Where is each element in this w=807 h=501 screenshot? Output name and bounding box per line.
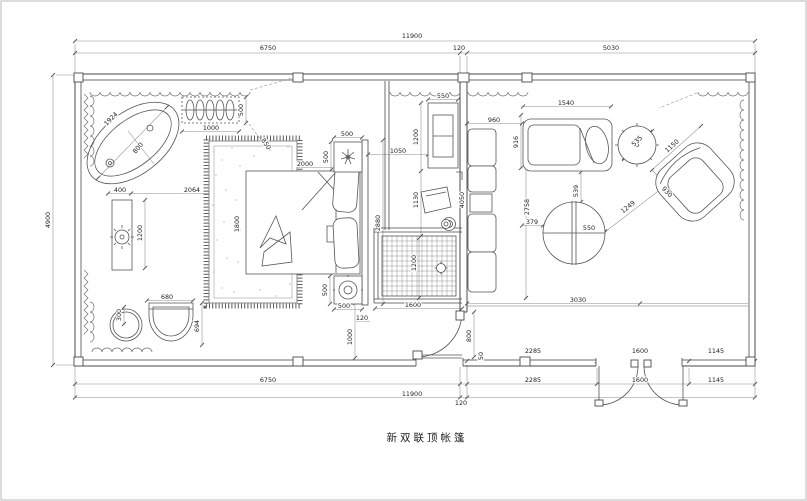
dim-vanity-width: 400 — [114, 186, 126, 194]
door-single — [413, 311, 464, 359]
nightstand-top — [334, 142, 362, 172]
dim-living-height: 2758 — [523, 199, 531, 215]
round-table — [543, 201, 605, 265]
dimension-lines — [51, 39, 757, 400]
dim-chair-length: 1130 — [412, 192, 420, 208]
curtain-top-left — [90, 92, 250, 96]
corridor — [382, 103, 462, 296]
curtain-right-wall — [740, 100, 744, 220]
dim-table-v: 539 — [572, 185, 580, 197]
dim-tv-gap: 1050 — [390, 147, 406, 155]
dim-diag-table: 1249 — [619, 199, 637, 215]
curtain-bottom-left — [92, 348, 152, 352]
dim-bottom-wall: 120 — [455, 399, 467, 407]
dim-sofa-wall: 4050 — [458, 192, 466, 208]
dim-bottom-total: 11900 — [402, 390, 422, 398]
curtain-top-right — [698, 92, 748, 96]
tv-cabinet — [428, 103, 462, 180]
curtain-left-wall-bottom — [90, 302, 94, 342]
dim-sofa-top: 960 — [488, 116, 500, 124]
dim-living-width: 3030 — [570, 296, 586, 304]
floor-plan-sheet: 11900 6750 120 5030 4900 2285 1600 1145 … — [0, 0, 807, 501]
dim-toilet-width: 680 — [161, 293, 173, 301]
dim-bed-wall: 2880 — [374, 215, 382, 231]
armchair — [648, 135, 741, 228]
dim-door-width: 800 — [465, 330, 473, 342]
dim-chaise-width: 1540 — [558, 99, 574, 107]
drawing-title: 新双联顶帐篷 — [387, 431, 468, 444]
dim-row1-a: 2285 — [525, 347, 541, 355]
nightstand-bottom — [333, 275, 363, 305]
bedroom — [206, 138, 363, 306]
dim-table-gap: 379 — [526, 218, 538, 226]
curtain-zigzag-left — [84, 94, 88, 334]
dim-sofa-depth: 916 — [512, 136, 520, 148]
dimension-labels: 11900 6750 120 5030 4900 2285 1600 1145 … — [44, 32, 724, 407]
dim-wall-50: 50 — [477, 352, 485, 360]
dim-vanity-gap: 2064 — [184, 186, 200, 194]
sofa — [467, 128, 496, 292]
dim-tub-length: 1924 — [102, 110, 119, 127]
bathtub — [72, 86, 194, 200]
bathtub-drain — [147, 125, 153, 131]
toilet — [149, 303, 193, 341]
door-gap-1 — [416, 357, 463, 367]
dim-tub-radius: 800 — [131, 141, 145, 155]
dim-nightstand-bot-w: 500 — [338, 302, 350, 310]
floor-plan-canvas: 11900 6750 120 5030 4900 2285 1600 1145 … — [0, 0, 807, 501]
vanity — [110, 200, 134, 270]
dim-rack-width: 1000 — [203, 124, 219, 132]
dim-row1-b: 1600 — [632, 347, 648, 355]
dim-row2-left: 6750 — [260, 376, 276, 384]
shower-drain — [437, 264, 446, 273]
dim-row1-c: 1145 — [708, 347, 724, 355]
dim-top-right: 5030 — [603, 44, 619, 52]
dim-gap-1000: 1000 — [346, 329, 354, 345]
dim-row2-b: 1600 — [632, 376, 648, 384]
dim-row2-a: 2285 — [525, 376, 541, 384]
dim-tv-length: 1200 — [412, 129, 420, 145]
dim-rack-depth: 500 — [237, 104, 245, 116]
bed — [246, 159, 360, 274]
dim-stool: 300 — [115, 309, 123, 321]
dim-top-total: 11900 — [402, 32, 422, 40]
dim-tv-width: 550 — [437, 92, 449, 100]
pillow — [333, 217, 360, 268]
sofa-side-table — [470, 194, 492, 212]
dim-nightstand-bot-h: 500 — [321, 284, 329, 296]
dim-carpet-height: 1800 — [233, 216, 241, 232]
dim-shower-width: 1600 — [405, 301, 421, 309]
dim-row2-c: 1145 — [708, 376, 724, 384]
accessory — [442, 220, 451, 229]
walls — [74, 73, 755, 367]
curtain-left-wall-top — [90, 96, 94, 166]
dim-left-height: 4900 — [44, 212, 52, 228]
dim-nightstand-top-w: 500 — [341, 130, 353, 138]
dim-top-wall: 120 — [453, 44, 465, 52]
curtain-top-mid — [390, 92, 460, 96]
sheet-border — [1, 1, 806, 500]
door-gap-2 — [596, 357, 682, 367]
dim-gap-120: 120 — [356, 314, 368, 322]
dim-nightstand-top-h: 500 — [322, 151, 330, 163]
curtain-top-living — [468, 92, 528, 96]
dim-shower-height: 1200 — [410, 255, 418, 271]
dim-vanity-length: 1200 — [136, 225, 144, 241]
dim-table-radius: 550 — [583, 224, 595, 232]
dim-bed-width: 2000 — [297, 160, 313, 168]
living-room — [467, 119, 742, 292]
dim-top-left: 6750 — [260, 44, 276, 52]
dim-toilet-depth: 694 — [193, 320, 201, 332]
chaise-lounge — [523, 119, 612, 171]
clothes-rack — [182, 97, 239, 123]
